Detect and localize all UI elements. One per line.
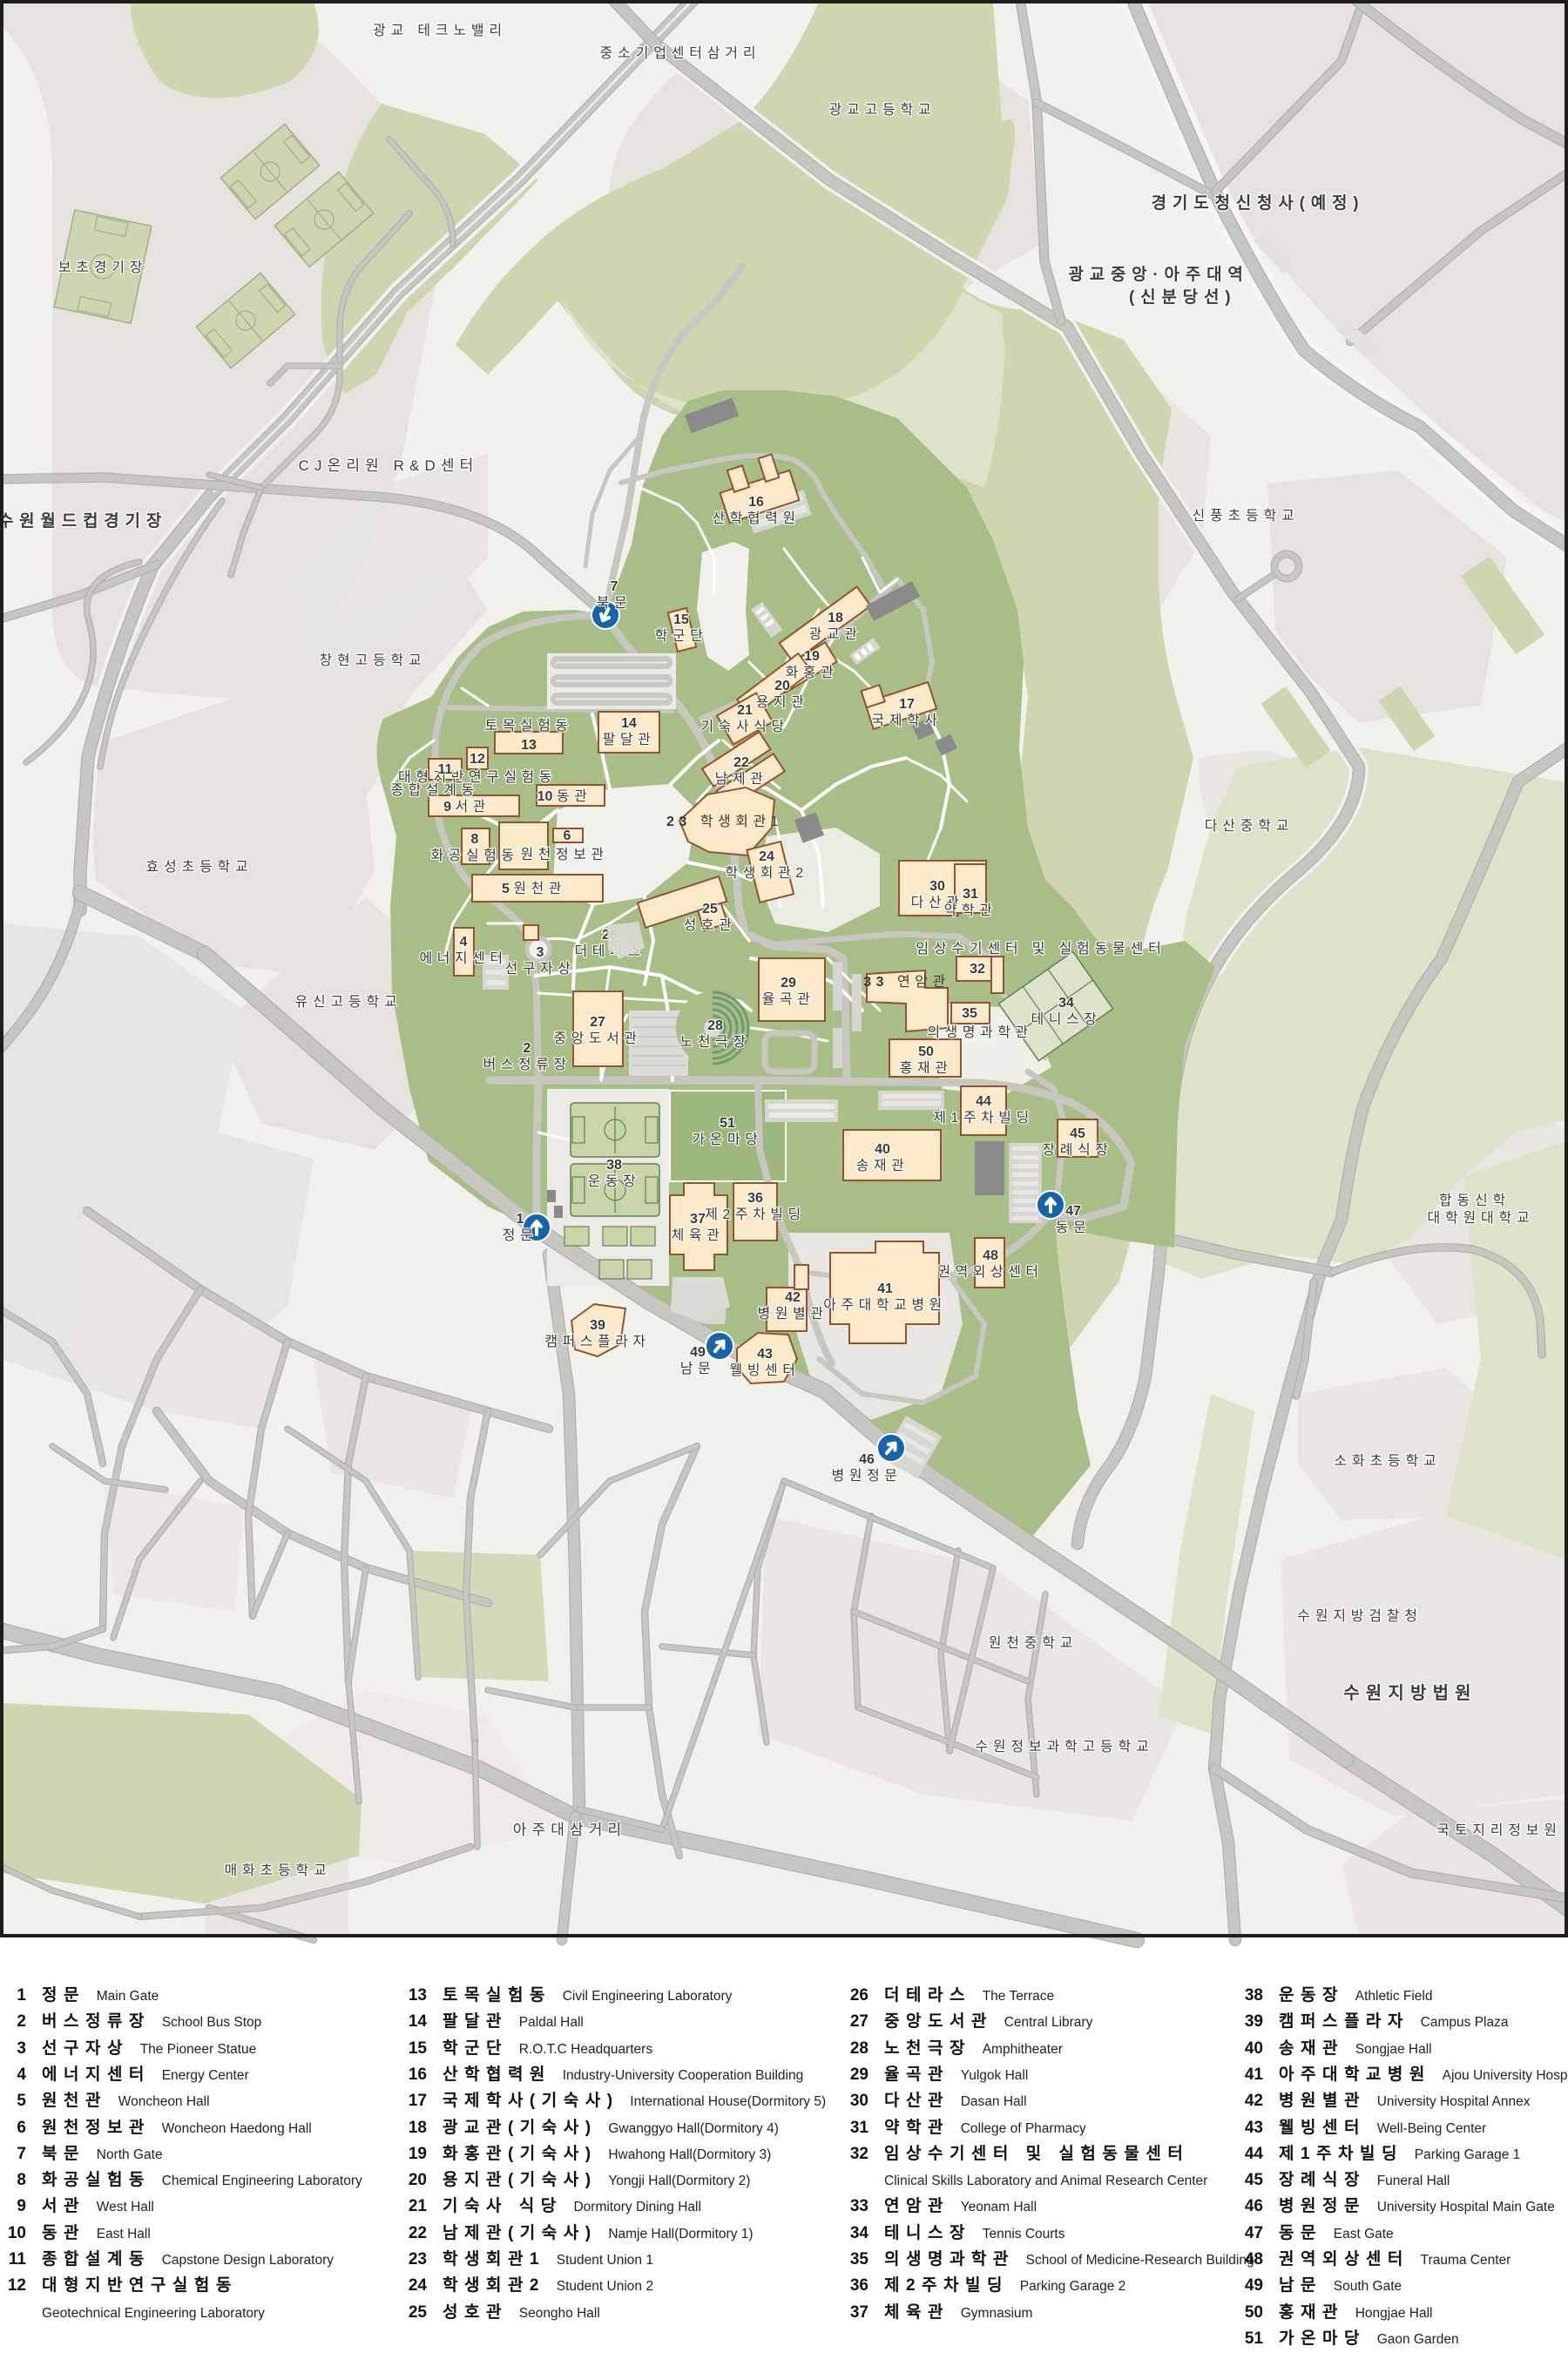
svg-text:학군단 R.O.T.C Headquarters: 학군단 R.O.T.C Headquarters [443,2039,652,2058]
svg-text:4: 4 [460,935,468,950]
svg-text:22: 22 [733,755,749,770]
svg-text:27: 27 [850,2012,868,2031]
svg-text:남제관: 남제관 [715,771,768,787]
svg-text:48: 48 [1245,2250,1263,2268]
svg-text:22: 22 [409,2224,427,2242]
svg-text:제1주차빌딩: 제1주차빌딩 [933,1110,1034,1126]
svg-text:선구자상 The Pioneer Statue: 선구자상 The Pioneer Statue [42,2039,256,2058]
svg-text:웰빙센터 Well-Being Center: 웰빙센터 Well-Being Center [1279,2118,1486,2137]
svg-text:13: 13 [409,1986,427,2005]
svg-text:국토지리정보원: 국토지리정보원 [1436,1822,1562,1838]
svg-text:노천극장: 노천극장 [680,1034,751,1050]
svg-text:노천극장 Amphitheater: 노천극장 Amphitheater [884,2039,1063,2058]
svg-text:제2주차빌딩: 제2주차빌딩 [705,1207,806,1222]
svg-text:CJ온리원 R&D센터: CJ온리원 R&D센터 [299,457,479,474]
svg-text:8: 8 [471,832,479,847]
svg-text:51: 51 [1245,2329,1264,2348]
svg-text:테니스장 Tennis Courts: 테니스장 Tennis Courts [884,2223,1065,2242]
svg-text:19: 19 [804,649,820,664]
svg-text:33: 33 [850,2197,868,2215]
svg-text:송재관 Songjae Hall: 송재관 Songjae Hall [1279,2039,1432,2058]
svg-text:수원지방검찰청: 수원지방검찰청 [1297,1608,1423,1624]
svg-text:43: 43 [757,1347,773,1362]
svg-text:9 서관: 9 서관 [443,799,490,815]
svg-text:32: 32 [850,2145,868,2163]
svg-text:팔달관 Paldal Hall: 팔달관 Paldal Hall [443,2012,584,2031]
svg-text:중앙도서관 Central Library: 중앙도서관 Central Library [884,2012,1093,2031]
svg-text:4: 4 [17,2066,26,2084]
svg-text:33 연암관: 33 연암관 [863,974,950,990]
svg-text:학군단: 학군단 [655,628,708,644]
svg-text:율곡관: 율곡관 [762,991,815,1007]
svg-text:19: 19 [409,2145,427,2163]
svg-text:운동장: 운동장 [588,1173,641,1189]
svg-text:의생명과학관 School of Medicine-Rese: 의생명과학관 School of Medicine-Research Build… [884,2249,1254,2268]
svg-text:40: 40 [875,1142,890,1157]
svg-text:Geotechnical Engineering Labor: Geotechnical Engineering Laboratory [42,2306,265,2321]
svg-text:32: 32 [970,962,985,977]
svg-text:29: 29 [781,976,796,991]
svg-text:토목실험동: 토목실험동 [484,718,572,734]
svg-text:14: 14 [621,716,637,731]
svg-text:정문 Main Gate: 정문 Main Gate [42,1985,159,2005]
svg-text:15: 15 [673,612,689,627]
svg-text:제1주차빌딩 Parking Garage 1: 제1주차빌딩 Parking Garage 1 [1279,2144,1520,2163]
svg-text:44: 44 [1245,2145,1264,2163]
svg-text:국제학사(기숙사) International House(: 국제학사(기숙사) International House(Dormitory … [443,2091,826,2110]
svg-text:가온마당 Gaon Garden: 가온마당 Gaon Garden [1279,2329,1459,2348]
svg-text:39: 39 [1245,2012,1263,2031]
svg-text:3: 3 [537,945,544,960]
svg-text:종합설계동: 종합설계동 [390,782,478,798]
svg-text:수원정보과학고등학교: 수원정보과학고등학교 [975,1739,1153,1755]
svg-text:51: 51 [720,1116,735,1131]
svg-text:중소기업센터삼거리: 중소기업센터삼거리 [600,45,761,61]
svg-text:토목실험동 Civil Engineering Labora: 토목실험동 Civil Engineering Laboratory [443,1985,733,2005]
svg-text:12: 12 [470,752,485,767]
svg-text:원천관 Woncheon Hall: 원천관 Woncheon Hall [42,2091,210,2110]
svg-text:34: 34 [850,2224,869,2242]
svg-text:5: 5 [17,2092,26,2110]
svg-text:다산중학교: 다산중학교 [1205,818,1294,834]
svg-text:45: 45 [1070,1126,1085,1141]
svg-text:성호관 Seongho Hall: 성호관 Seongho Hall [443,2302,600,2322]
svg-text:대학원대학교: 대학원대학교 [1427,1210,1534,1226]
svg-text:가온마당: 가온마당 [693,1132,763,1147]
svg-text:30: 30 [850,2092,868,2110]
svg-text:2: 2 [524,1041,531,1056]
svg-text:26: 26 [850,1986,868,2005]
svg-text:남문: 남문 [680,1361,715,1376]
svg-text:의생명과학관: 의생명과학관 [927,1024,1032,1040]
svg-text:10: 10 [8,2224,26,2242]
svg-text:학생회관1 Student Union 1: 학생회관1 Student Union 1 [443,2249,653,2268]
svg-text:50: 50 [1245,2303,1263,2322]
svg-text:신풍초등학교: 신풍초등학교 [1192,508,1299,524]
svg-text:36: 36 [747,1191,763,1206]
svg-text:기숙사식당: 기숙사식당 [700,719,788,734]
svg-text:학생회관2 Student Union 2: 학생회관2 Student Union 2 [443,2275,653,2295]
svg-text:다산관 Dasan Hall: 다산관 Dasan Hall [884,2091,1027,2110]
svg-text:합동신학: 합동신학 [1439,1193,1511,1208]
svg-text:20: 20 [409,2171,427,2189]
svg-text:50: 50 [918,1045,934,1059]
svg-text:10 동관: 10 동관 [537,788,592,804]
svg-text:17: 17 [409,2092,427,2110]
svg-text:동문: 동문 [1056,1220,1091,1235]
svg-text:연암관 Yeonam Hall: 연암관 Yeonam Hall [884,2196,1037,2215]
svg-text:서관 West Hall: 서관 West Hall [42,2196,154,2215]
svg-text:화공실험동: 화공실험동 [430,848,518,863]
svg-text:원천중학교: 원천중학교 [989,1635,1078,1651]
svg-text:23: 23 [409,2250,427,2268]
svg-text:49: 49 [690,1345,706,1360]
svg-text:보초경기장: 보초경기장 [58,260,148,275]
svg-text:45: 45 [1245,2171,1264,2189]
svg-text:남문 South Gate: 남문 South Gate [1279,2275,1402,2295]
svg-text:21: 21 [737,703,753,718]
svg-text:40: 40 [1245,2039,1263,2058]
svg-text:유신고등학교: 유신고등학교 [294,994,402,1010]
svg-text:37: 37 [690,1212,706,1227]
svg-text:율곡관 Yulgok Hall: 율곡관 Yulgok Hall [884,2065,1028,2084]
svg-text:43: 43 [1245,2119,1263,2137]
svg-text:체육관 Gymnasium: 체육관 Gymnasium [884,2302,1032,2322]
svg-text:13: 13 [521,738,537,753]
svg-text:37: 37 [850,2303,868,2322]
svg-text:병원별관: 병원별관 [758,1306,828,1322]
svg-text:수원지방법원: 수원지방법원 [1343,1683,1477,1703]
svg-text:18: 18 [409,2119,427,2137]
svg-text:선구자상: 선구자상 [505,961,576,977]
svg-text:1: 1 [17,1986,26,2005]
svg-text:29: 29 [850,2066,868,2084]
svg-text:약학관: 약학관 [944,903,997,918]
svg-text:북문 North Gate: 북문 North Gate [42,2144,163,2163]
svg-text:용지관: 용지관 [756,694,809,710]
svg-text:에너지센터 Energy Center: 에너지센터 Energy Center [42,2065,249,2084]
svg-text:광교중앙·아주대역: 광교중앙·아주대역 [1068,265,1248,284]
svg-text:2: 2 [17,2012,26,2031]
svg-text:6: 6 [17,2119,26,2137]
svg-text:25: 25 [409,2303,428,2322]
svg-text:임상수기센터 및 실험동물센터: 임상수기센터 및 실험동물센터 [884,2144,1189,2163]
svg-text:41: 41 [1245,2066,1264,2084]
svg-text:16: 16 [409,2066,427,2084]
svg-text:국제학사: 국제학사 [872,713,943,728]
svg-text:44: 44 [976,1094,991,1109]
svg-text:병원별관 University Hospital Annex: 병원별관 University Hospital Annex [1279,2091,1531,2110]
svg-text:35: 35 [962,1006,977,1021]
svg-text:웰빙센터: 웰빙센터 [730,1362,801,1378]
svg-text:팔달관: 팔달관 [603,732,656,747]
svg-text:기숙사 식당 Dormitory Dining Hall: 기숙사 식당 Dormitory Dining Hall [443,2196,701,2215]
svg-text:병원정문 University Hospital Main: 병원정문 University Hospital Main Gate [1279,2196,1555,2215]
svg-text:46: 46 [859,1452,875,1467]
svg-text:34: 34 [1058,996,1074,1011]
svg-text:49: 49 [1245,2276,1263,2295]
svg-text:9: 9 [17,2197,26,2215]
svg-text:정문: 정문 [503,1227,537,1243]
svg-text:동관 East Hall: 동관 East Hall [42,2223,151,2242]
svg-text:학생회관2: 학생회관2 [725,865,808,881]
svg-text:제2주차빌딩 Parking Garage 2: 제2주차빌딩 Parking Garage 2 [884,2275,1125,2295]
svg-text:홍재관: 홍재관 [900,1060,953,1076]
svg-text:14: 14 [409,2012,428,2031]
svg-text:중앙도서관: 중앙도서관 [553,1031,641,1046]
svg-text:8: 8 [17,2171,26,2189]
svg-text:38: 38 [1245,1986,1263,2005]
svg-text:16: 16 [748,495,764,510]
svg-text:화홍관: 화홍관 [786,665,839,680]
svg-text:28: 28 [850,2039,868,2058]
svg-text:권역외상센터: 권역외상센터 [937,1264,1043,1280]
svg-text:체육관: 체육관 [672,1227,725,1243]
svg-text:대형지반연구실험동: 대형지반연구실험동 [42,2275,238,2295]
svg-text:38: 38 [606,1158,622,1173]
svg-text:41: 41 [877,1281,893,1296]
svg-text:1: 1 [517,1212,524,1227]
svg-text:27: 27 [590,1015,605,1030]
svg-text:테니스장: 테니스장 [1031,1011,1102,1027]
svg-text:24: 24 [759,849,774,864]
svg-text:북문: 북문 [597,596,632,611]
svg-text:매화초등학교: 매화초등학교 [224,1863,331,1878]
svg-text:수원월드컵경기장: 수원월드컵경기장 [0,511,167,531]
svg-text:39: 39 [590,1318,605,1333]
svg-text:31: 31 [850,2119,869,2137]
svg-text:캠퍼스플라자 Campus Plaza: 캠퍼스플라자 Campus Plaza [1279,2012,1509,2031]
svg-text:17: 17 [899,697,915,712]
svg-text:47: 47 [1065,1204,1081,1219]
svg-text:아주대학교병원 Ajou University Hospit: 아주대학교병원 Ajou University Hospital [1279,2065,1568,2084]
svg-text:화공실험동 Chemical Engineering Lab: 화공실험동 Chemical Engineering Laboratory [42,2170,362,2189]
svg-text:36: 36 [850,2276,868,2295]
svg-text:송재관: 송재관 [856,1158,909,1173]
svg-text:35: 35 [850,2250,869,2268]
svg-text:용지관(기숙사) Yongji Hall(Dormitory: 용지관(기숙사) Yongji Hall(Dormitory 2) [443,2170,750,2189]
svg-text:20: 20 [774,679,790,693]
svg-text:7: 7 [17,2145,26,2163]
svg-text:42: 42 [1245,2092,1263,2110]
svg-text:광교고등학교: 광교고등학교 [828,102,936,118]
svg-text:46: 46 [1245,2197,1263,2215]
svg-text:18: 18 [828,611,843,625]
svg-text:6: 6 [564,828,571,843]
svg-text:권역외상센터 Trauma Center: 권역외상센터 Trauma Center [1279,2249,1511,2268]
svg-text:47: 47 [1245,2224,1263,2242]
svg-text:산학협력원: 산학협력원 [712,510,800,526]
svg-text:광교 테크노밸리: 광교 테크노밸리 [373,23,507,38]
svg-text:21: 21 [409,2197,428,2215]
svg-text:에너지센터: 에너지센터 [419,950,507,966]
svg-text:산학협력원 Industry-University Coop: 산학협력원 Industry-University Cooperation Bu… [443,2065,803,2084]
svg-text:5 원천관: 5 원천관 [502,881,566,896]
svg-text:임상수기센터 및 실험동물센터: 임상수기센터 및 실험동물센터 [916,941,1166,957]
svg-text:버스정류장 School Bus Stop: 버스정류장 School Bus Stop [42,2012,261,2031]
svg-text:효성초등학교: 효성초등학교 [145,859,253,875]
svg-text:광교관: 광교관 [809,626,862,642]
svg-text:31: 31 [963,887,978,902]
svg-text:원천정보관 Woncheon Haedong Hall: 원천정보관 Woncheon Haedong Hall [42,2118,312,2137]
svg-text:창현고등학교: 창현고등학교 [319,652,426,668]
svg-text:경기도청신청사(예정): 경기도청신청사(예정) [1152,193,1365,213]
svg-text:11: 11 [9,2250,27,2268]
svg-text:광교관(기숙사) Gwanggyo Hall(Dormito: 광교관(기숙사) Gwanggyo Hall(Dormitory 4) [443,2118,779,2137]
svg-text:아주대학교병원: 아주대학교병원 [823,1297,947,1313]
svg-text:24: 24 [409,2276,428,2295]
svg-text:15: 15 [409,2039,428,2058]
svg-text:동문 East Gate: 동문 East Gate [1279,2224,1394,2242]
svg-text:원천정보관: 원천정보관 [520,847,608,862]
svg-text:남제관(기숙사) Namje Hall(Dormitory: 남제관(기숙사) Namje Hall(Dormitory 1) [443,2223,754,2242]
svg-text:캠퍼스플라자: 캠퍼스플라자 [544,1334,650,1349]
svg-text:23 학생회관1: 23 학생회관1 [666,814,783,829]
svg-text:종합설계동 Capstone Design Laborato: 종합설계동 Capstone Design Laboratory [42,2249,334,2268]
svg-text:버스정류장: 버스정류장 [483,1057,571,1072]
svg-text:42: 42 [785,1290,801,1305]
svg-text:12: 12 [8,2276,26,2295]
svg-text:소화초등학교: 소화초등학교 [1334,1453,1441,1469]
svg-text:25: 25 [702,902,718,916]
svg-text:장례식장: 장례식장 [1043,1142,1113,1158]
svg-text:30: 30 [929,879,945,894]
svg-text:병원정문: 병원정문 [832,1468,902,1484]
svg-text:아주대삼거리: 아주대삼거리 [513,1822,626,1838]
svg-text:48: 48 [983,1248,998,1263]
svg-text:11: 11 [438,762,453,777]
svg-text:장례식장 Funeral Hall: 장례식장 Funeral Hall [1279,2170,1450,2189]
svg-text:3: 3 [17,2039,26,2058]
svg-text:운동장 Athletic Field: 운동장 Athletic Field [1279,1985,1432,2005]
svg-text:28: 28 [707,1018,723,1033]
svg-text:더테라스 The Terrace: 더테라스 The Terrace [884,1985,1054,2005]
svg-text:(신분당선): (신분당선) [1129,287,1236,307]
svg-text:7: 7 [611,579,618,594]
svg-text:약학관 College of Pharmacy: 약학관 College of Pharmacy [884,2118,1086,2137]
svg-text:성호관: 성호관 [684,917,737,933]
svg-text:Clinical Skills Laboratory and: Clinical Skills Laboratory and Animal Re… [884,2174,1207,2188]
